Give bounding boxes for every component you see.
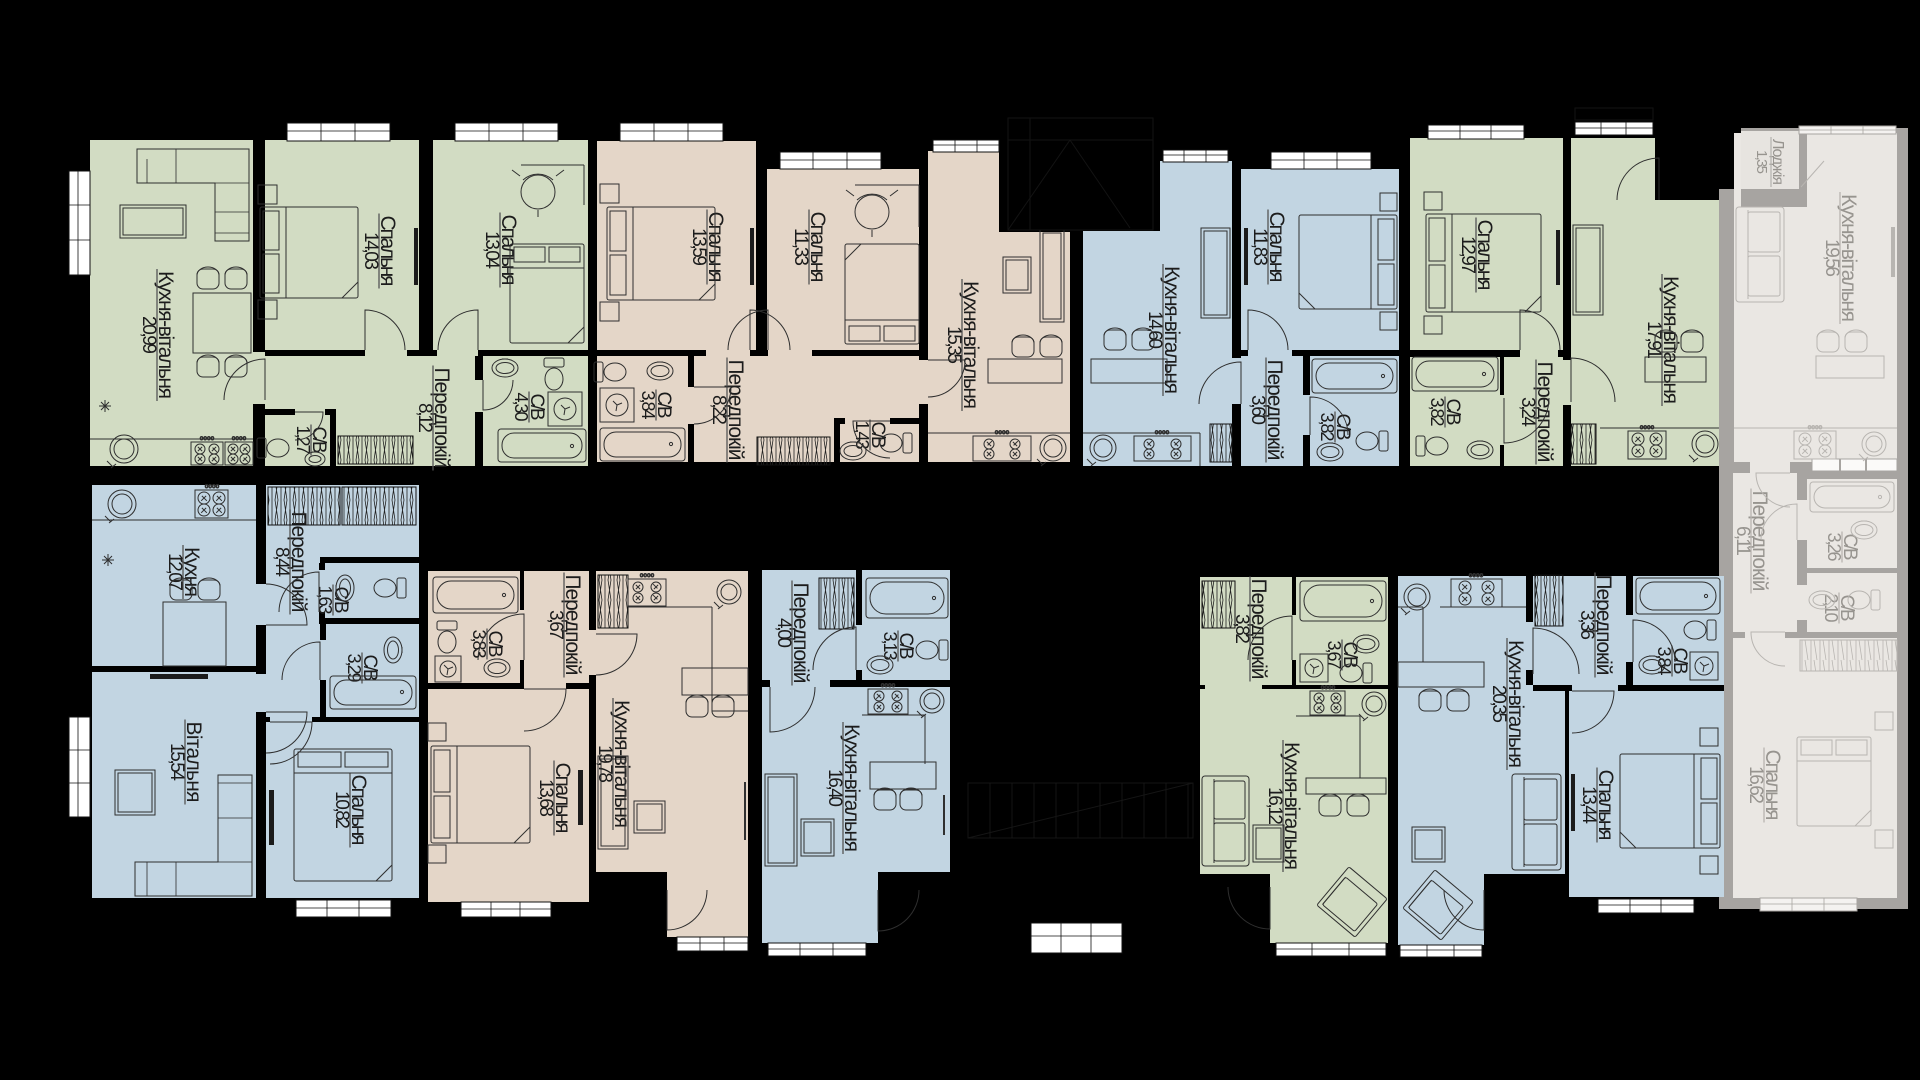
- svg-text:4,00: 4,00: [773, 618, 794, 648]
- svg-text:13,68: 13,68: [535, 779, 556, 817]
- svg-text:16,40: 16,40: [824, 769, 845, 807]
- svg-text:13,59: 13,59: [688, 228, 709, 266]
- svg-text:19,56: 19,56: [1821, 239, 1842, 277]
- svg-text:20,35: 20,35: [1488, 685, 1509, 723]
- svg-text:3,84: 3,84: [638, 391, 658, 420]
- svg-text:oooo: oooo: [881, 682, 896, 689]
- svg-text:13,44: 13,44: [1578, 786, 1599, 824]
- svg-text:4,30: 4,30: [511, 393, 531, 422]
- svg-text:13,04: 13,04: [481, 231, 502, 269]
- svg-text:3,29: 3,29: [344, 654, 364, 683]
- svg-text:14,03: 14,03: [360, 232, 381, 270]
- svg-text:6,11: 6,11: [1732, 526, 1753, 556]
- svg-text:oooo: oooo: [1640, 424, 1655, 431]
- svg-text:oooo: oooo: [232, 435, 247, 442]
- svg-text:oooo: oooo: [1321, 684, 1336, 691]
- svg-text:11,33: 11,33: [790, 228, 811, 266]
- svg-text:20,99: 20,99: [138, 316, 159, 354]
- svg-text:3,67: 3,67: [545, 610, 566, 640]
- svg-text:11,83: 11,83: [1249, 228, 1270, 266]
- svg-text:16,12: 16,12: [1264, 787, 1285, 825]
- svg-text:3,26: 3,26: [1824, 533, 1844, 562]
- svg-text:17,91: 17,91: [1643, 321, 1664, 359]
- svg-text:10,82: 10,82: [331, 791, 352, 829]
- svg-text:3,82: 3,82: [1427, 398, 1447, 427]
- svg-text:3,82: 3,82: [1317, 413, 1337, 442]
- svg-text:8,12: 8,12: [414, 403, 435, 433]
- svg-text:2,10: 2,10: [1821, 594, 1841, 623]
- svg-text:1,35: 1,35: [1753, 150, 1770, 174]
- svg-text:3,36: 3,36: [1576, 610, 1597, 640]
- svg-text:oooo: oooo: [995, 429, 1010, 436]
- svg-text:8,44: 8,44: [271, 547, 292, 577]
- svg-text:12,97: 12,97: [1457, 236, 1478, 274]
- svg-text:3,67: 3,67: [1324, 641, 1344, 670]
- svg-text:oooo: oooo: [1155, 429, 1170, 436]
- svg-text:15,35: 15,35: [943, 326, 964, 364]
- svg-text:16,62: 16,62: [1745, 766, 1766, 804]
- svg-text:8,22: 8,22: [708, 395, 729, 425]
- svg-text:oooo: oooo: [1469, 572, 1484, 579]
- svg-text:oooo: oooo: [200, 435, 215, 442]
- svg-text:oooo: oooo: [205, 483, 220, 490]
- svg-text:3,60: 3,60: [1247, 395, 1268, 425]
- svg-text:19,78: 19,78: [594, 745, 615, 783]
- svg-text:oooo: oooo: [640, 572, 655, 579]
- svg-text:12,07: 12,07: [164, 553, 185, 591]
- svg-text:15,54: 15,54: [166, 743, 187, 781]
- svg-text:3,24: 3,24: [1517, 397, 1538, 427]
- svg-text:1,63: 1,63: [315, 586, 335, 615]
- svg-text:oooo: oooo: [1808, 424, 1823, 431]
